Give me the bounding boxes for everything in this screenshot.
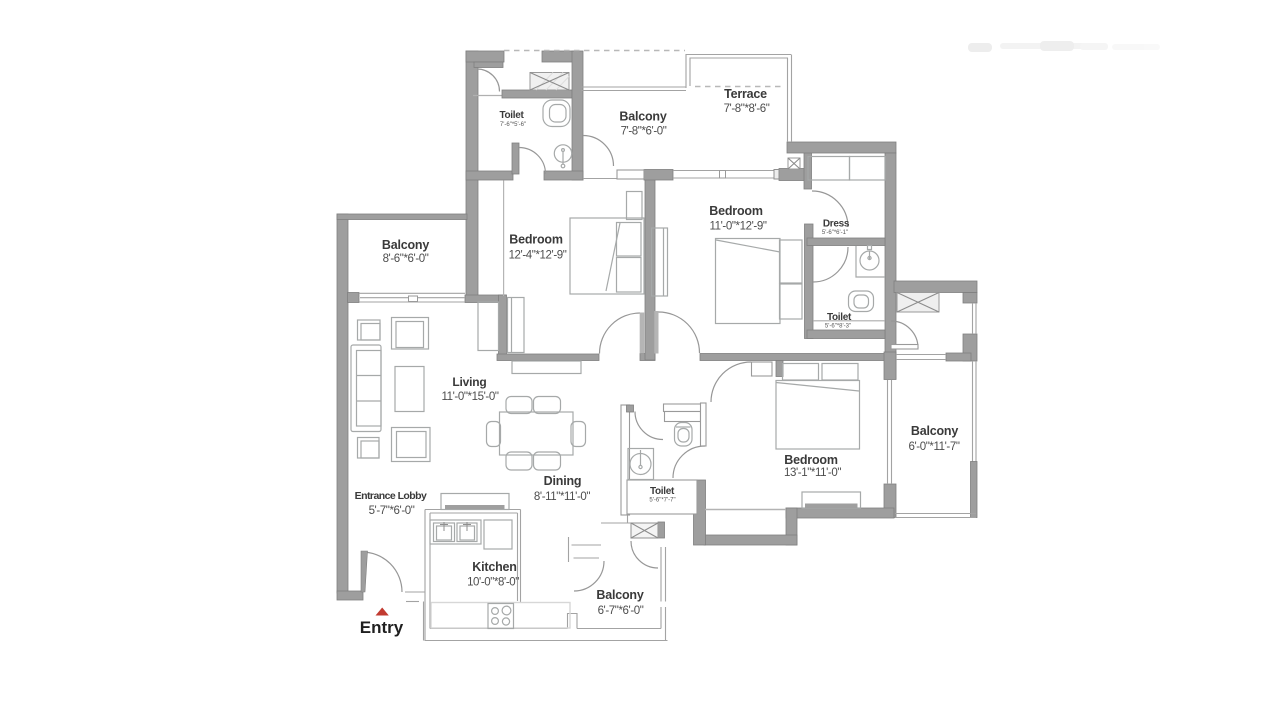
svg-text:5'-6"*8'-3": 5'-6"*8'-3" bbox=[825, 324, 851, 330]
svg-text:Bedroom: Bedroom bbox=[509, 233, 563, 247]
svg-text:Balcony: Balcony bbox=[619, 110, 666, 124]
svg-text:7'-8"*6'-0": 7'-8"*6'-0" bbox=[621, 126, 667, 138]
svg-text:6'-0"*11'-7": 6'-0"*11'-7" bbox=[908, 441, 959, 453]
svg-text:Dining: Dining bbox=[544, 474, 582, 488]
svg-text:6'-7"*6'-0": 6'-7"*6'-0" bbox=[598, 605, 644, 617]
svg-text:Dress: Dress bbox=[823, 219, 850, 230]
svg-text:11'-0"*15'-0": 11'-0"*15'-0" bbox=[441, 391, 498, 403]
svg-text:Entry: Entry bbox=[360, 618, 404, 637]
svg-text:Balcony: Balcony bbox=[596, 588, 643, 602]
svg-text:Entrance Lobby: Entrance Lobby bbox=[355, 490, 427, 502]
svg-text:Balcony: Balcony bbox=[911, 424, 958, 438]
svg-text:Toilet: Toilet bbox=[827, 312, 852, 323]
svg-text:5'-6"*6'-1": 5'-6"*6'-1" bbox=[822, 230, 848, 236]
svg-text:7'-6"*5'-6": 7'-6"*5'-6" bbox=[500, 122, 526, 128]
svg-text:12'-4"*12'-9": 12'-4"*12'-9" bbox=[509, 250, 567, 262]
svg-text:Bedroom: Bedroom bbox=[709, 204, 763, 218]
svg-text:Kitchen: Kitchen bbox=[472, 560, 516, 574]
svg-text:13'-1"*11'-0": 13'-1"*11'-0" bbox=[784, 467, 841, 479]
svg-text:7'-8"*8'-6": 7'-8"*8'-6" bbox=[724, 103, 770, 115]
svg-text:Toilet: Toilet bbox=[499, 110, 524, 121]
svg-text:5'-7"*6'-0": 5'-7"*6'-0" bbox=[369, 505, 415, 517]
svg-text:10'-0"*8'-0": 10'-0"*8'-0" bbox=[467, 577, 519, 589]
svg-text:Toilet: Toilet bbox=[650, 486, 675, 497]
svg-text:8'-11"*11'-0": 8'-11"*11'-0" bbox=[534, 491, 590, 503]
svg-text:8'-6"*6'-0": 8'-6"*6'-0" bbox=[383, 253, 429, 265]
svg-text:Living: Living bbox=[452, 375, 486, 389]
svg-text:11'-0"*12'-9": 11'-0"*12'-9" bbox=[709, 221, 766, 233]
svg-text:Balcony: Balcony bbox=[382, 238, 429, 252]
svg-text:5'-6"*7'-7": 5'-6"*7'-7" bbox=[649, 498, 675, 504]
svg-text:Terrace: Terrace bbox=[724, 87, 767, 101]
svg-text:Bedroom: Bedroom bbox=[784, 453, 838, 467]
